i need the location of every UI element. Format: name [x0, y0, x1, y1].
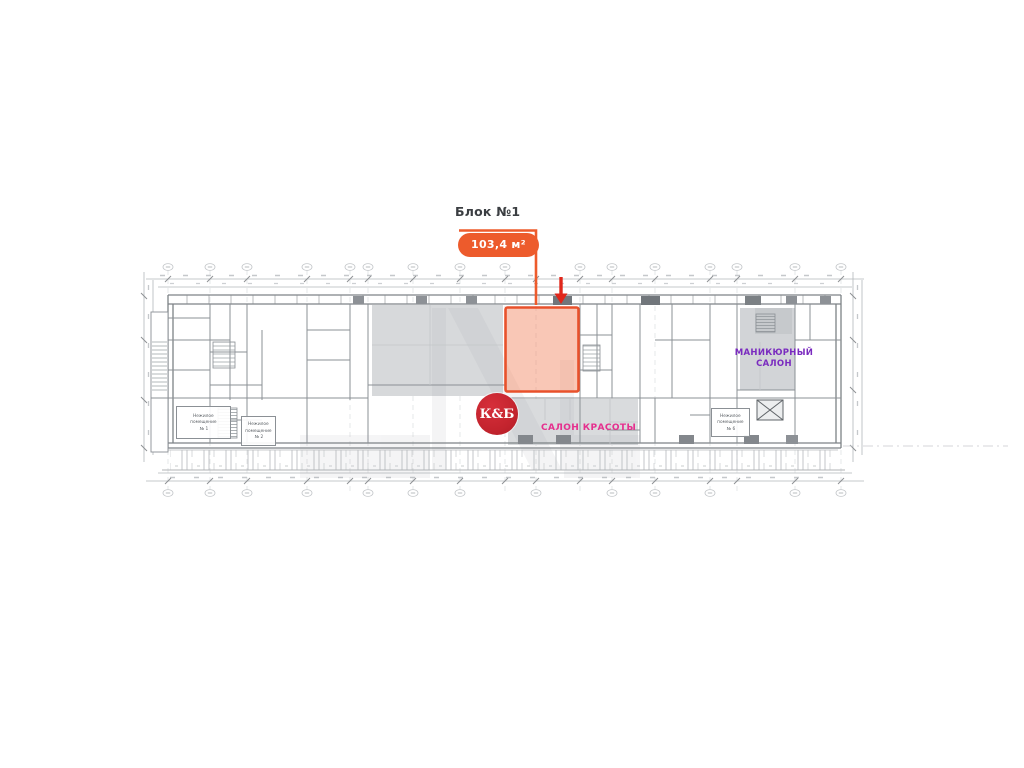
highlighted-unit-block1[interactable]: [506, 308, 579, 392]
manicure-line1: МАНИКЮРНЫЙ: [735, 348, 813, 358]
floorplan-page: Блок №1 103,4 м² К&Б САЛОН КРАСОТЫ МАНИК…: [0, 0, 1024, 768]
left-annex: [151, 312, 168, 452]
manicure-line2: САЛОН: [756, 359, 792, 369]
block-title: Блок №1: [455, 204, 520, 219]
kb-logo-text: К&Б: [480, 407, 515, 422]
room-plate-1: Нежилое помещение № 1: [176, 406, 231, 439]
top-wall-windows: [170, 296, 839, 304]
manicure-salon-label: МАНИКЮРНЫЙ САЛОН: [731, 348, 817, 369]
equipment-box: [757, 400, 783, 420]
bottom-bay-strip: [162, 450, 845, 470]
room-plate-6: Нежилое помещение № 6: [711, 408, 750, 437]
dimension-band-bottom: [146, 473, 864, 496]
dimension-band-right: [843, 272, 1008, 462]
floor-plan-drawing: [0, 0, 1024, 768]
kb-store-logo: К&Б: [476, 393, 518, 435]
beauty-salon-label: САЛОН КРАСОТЫ: [541, 423, 631, 433]
area-badge: 103,4 м²: [458, 233, 539, 257]
room-plate-2: Нежилое помещение № 2: [241, 416, 276, 446]
